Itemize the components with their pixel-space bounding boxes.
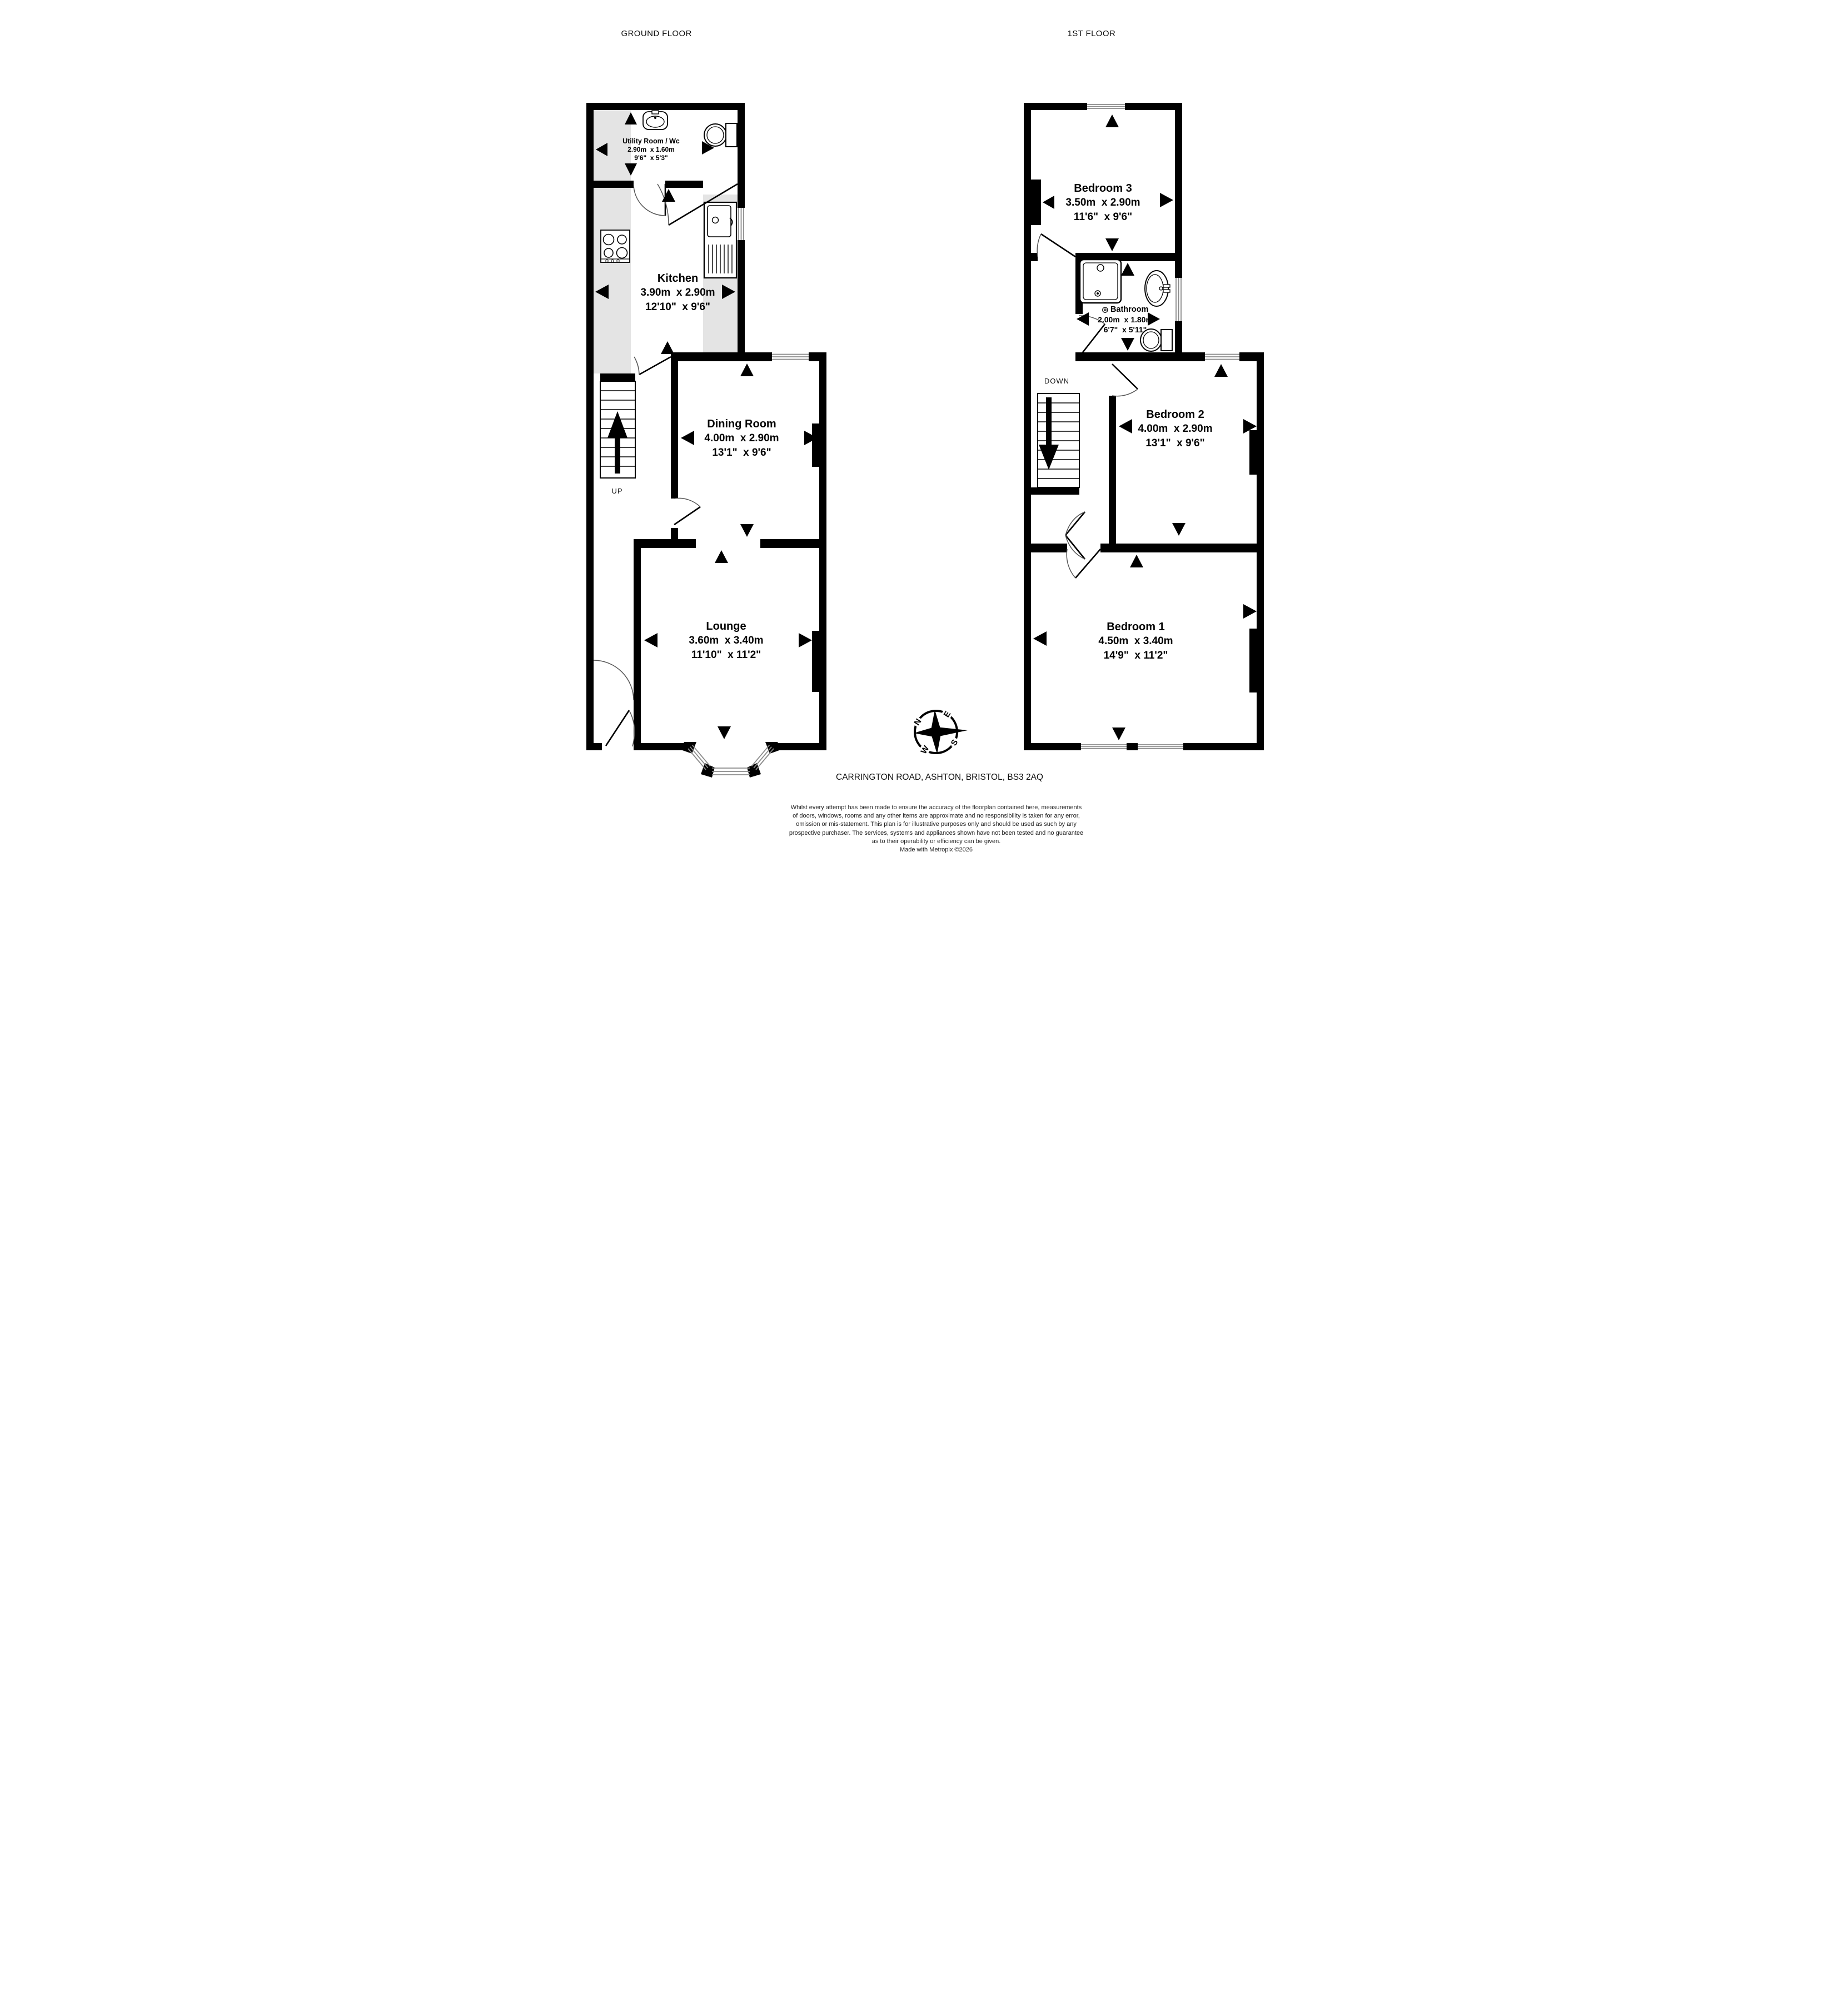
room-name: Dining Room <box>704 417 779 431</box>
utility-basin-icon <box>643 111 668 129</box>
bathroom-label: ◎ Bathroom 2.00m x 1.80m 6'7" x 5'11" <box>1098 305 1153 335</box>
utility-room-label: Utility Room / Wc 2.90m x 1.60m 9'6" x 5… <box>622 137 680 162</box>
utility-toilet-icon <box>704 123 737 147</box>
compass-n: N <box>912 717 923 727</box>
bedroom2-radiator <box>1249 430 1257 475</box>
compass-rose-icon: N E S W <box>912 710 968 756</box>
bedroom3-window <box>1087 103 1125 110</box>
dining-window <box>772 352 809 361</box>
kitchen-label: Kitchen 3.90m x 2.90m 12'10" x 9'6" <box>640 271 715 315</box>
room-dim-imperial: 11'6" x 9'6" <box>1065 210 1140 225</box>
bedroom3-label: Bedroom 3 3.50m x 2.90m 11'6" x 9'6" <box>1065 181 1140 225</box>
room-name: Lounge <box>689 619 763 634</box>
room-dim-imperial: 13'1" x 9'6" <box>704 446 779 460</box>
room-dim-metric: 4.50m x 3.40m <box>1098 634 1173 649</box>
bedroom2-label: Bedroom 2 4.00m x 2.90m 13'1" x 9'6" <box>1138 407 1212 451</box>
lounge-radiator <box>812 631 819 692</box>
room-dim-imperial: 12'10" x 9'6" <box>640 300 715 315</box>
disclaimer-line: prospective purchaser. The services, sys… <box>544 829 1329 838</box>
shower-head-icon: ◎ <box>1102 305 1108 313</box>
kitchen-sink-icon <box>704 202 736 278</box>
room-name: ◎ Bathroom <box>1098 305 1153 315</box>
room-dim-imperial: 6'7" x 5'11" <box>1098 325 1153 335</box>
room-dim-metric: 2.00m x 1.80m <box>1098 315 1153 325</box>
room-name: Bedroom 1 <box>1098 620 1173 634</box>
disclaimer-line: Made with Metropix ©2026 <box>544 846 1329 854</box>
hob-icon <box>601 230 630 262</box>
first-floor-title: 1ST FLOOR <box>1068 29 1116 38</box>
lounge-label: Lounge 3.60m x 3.40m 11'10" x 11'2" <box>689 619 763 662</box>
disclaimer-line: omission or mis-statement. This plan is … <box>544 820 1329 829</box>
room-dim-metric: 2.90m x 1.60m <box>622 146 680 154</box>
room-name: Bedroom 3 <box>1065 181 1140 196</box>
room-dim-metric: 4.00m x 2.90m <box>704 431 779 446</box>
bedroom1-radiator <box>1249 629 1257 692</box>
disclaimer-text: Whilst every attempt has been made to en… <box>544 804 1329 854</box>
floorplan-page: N E S W GROUND FLOOR 1ST FLOOR Utility R… <box>520 0 1329 881</box>
room-name-text: Bathroom <box>1110 305 1148 314</box>
property-address: CARRINGTON ROAD, ASHTON, BRISTOL, BS3 2A… <box>551 773 1329 783</box>
room-name: Utility Room / Wc <box>622 137 680 146</box>
room-dim-imperial: 9'6" x 5'3" <box>622 154 680 162</box>
room-dim-imperial: 14'9" x 11'2" <box>1098 649 1173 663</box>
bedroom2-window <box>1205 352 1239 361</box>
stairs-up-label: UP <box>611 487 622 495</box>
room-dim-imperial: 11'10" x 11'2" <box>689 648 763 662</box>
stairs-up <box>600 381 635 478</box>
room-dim-metric: 4.00m x 2.90m <box>1138 422 1212 436</box>
room-dim-imperial: 13'1" x 9'6" <box>1138 436 1212 451</box>
ground-floor-title: GROUND FLOOR <box>621 29 692 38</box>
shower-icon <box>1080 260 1121 303</box>
kitchen-window <box>738 208 745 240</box>
room-dim-metric: 3.60m x 3.40m <box>689 634 763 648</box>
dining-radiator <box>812 423 819 467</box>
room-name: Kitchen <box>640 271 715 286</box>
bathroom-basin-icon <box>1145 271 1170 306</box>
disclaimer-line: Whilst every attempt has been made to en… <box>544 804 1329 812</box>
disclaimer-line: as to their operability or efficiency ca… <box>544 838 1329 846</box>
room-dim-metric: 3.90m x 2.90m <box>640 286 715 300</box>
stairs-down-label: DOWN <box>1044 377 1069 385</box>
disclaimer-line: of doors, windows, rooms and any other i… <box>544 812 1329 820</box>
bedroom1-label: Bedroom 1 4.50m x 3.40m 14'9" x 11'2" <box>1098 620 1173 663</box>
stairs-down <box>1038 393 1079 487</box>
dining-room-label: Dining Room 4.00m x 2.90m 13'1" x 9'6" <box>704 417 779 460</box>
bathroom-window <box>1175 278 1182 321</box>
room-dim-metric: 3.50m x 2.90m <box>1065 196 1140 210</box>
room-name: Bedroom 2 <box>1138 407 1212 422</box>
